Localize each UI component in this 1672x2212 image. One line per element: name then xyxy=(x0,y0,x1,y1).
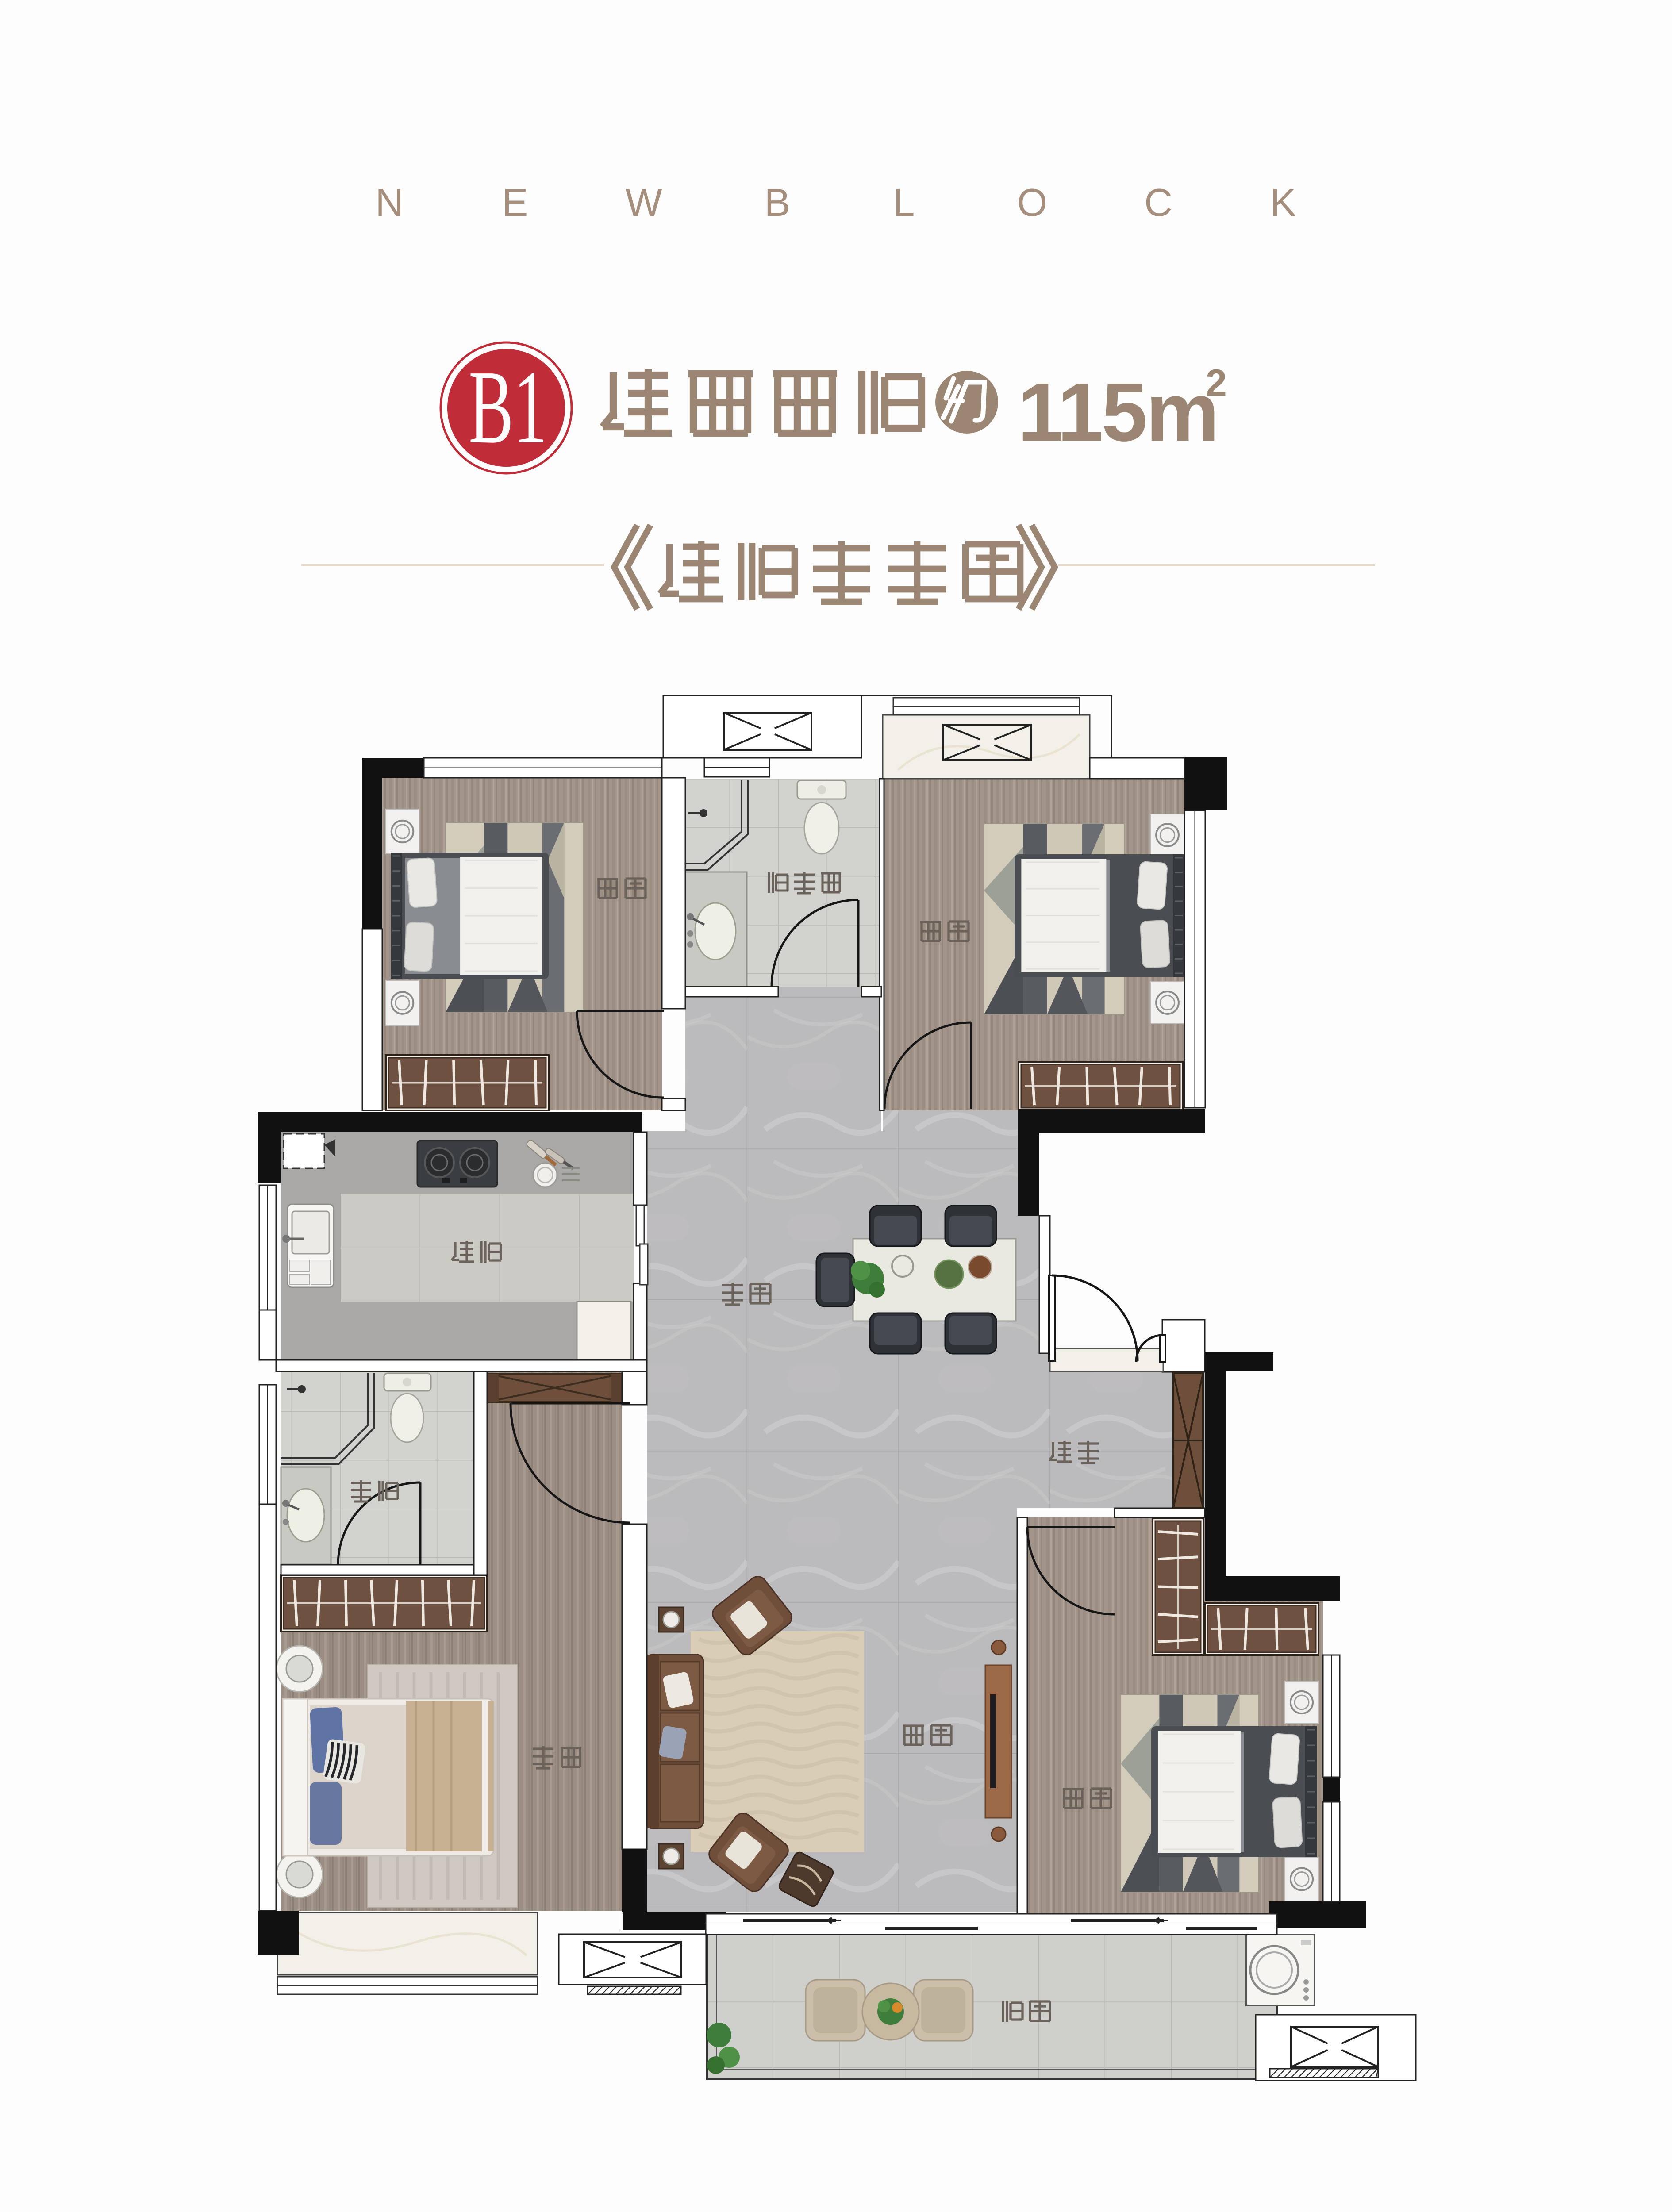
svg-text:E: E xyxy=(502,180,528,224)
svg-text:2: 2 xyxy=(1206,362,1227,404)
svg-text:O: O xyxy=(1088,2206,1137,2212)
svg-text:K: K xyxy=(1456,2206,1498,2212)
svg-text:K: K xyxy=(1270,180,1296,224)
svg-text:W: W xyxy=(625,180,662,224)
svg-text:O: O xyxy=(1017,180,1047,224)
svg-text:C: C xyxy=(1272,2206,1317,2212)
svg-text:N: N xyxy=(180,2206,226,2212)
svg-text:B: B xyxy=(727,2206,769,2212)
svg-text:B1: B1 xyxy=(469,349,547,465)
svg-text:B: B xyxy=(765,180,791,224)
svg-text:C: C xyxy=(1144,180,1172,224)
svg-text:L: L xyxy=(913,2206,948,2212)
svg-text:115m: 115m xyxy=(1018,366,1218,458)
svg-text:N: N xyxy=(375,180,404,224)
svg-text:W: W xyxy=(537,2206,596,2212)
svg-text:L: L xyxy=(893,180,915,224)
svg-text:E: E xyxy=(364,2206,406,2212)
